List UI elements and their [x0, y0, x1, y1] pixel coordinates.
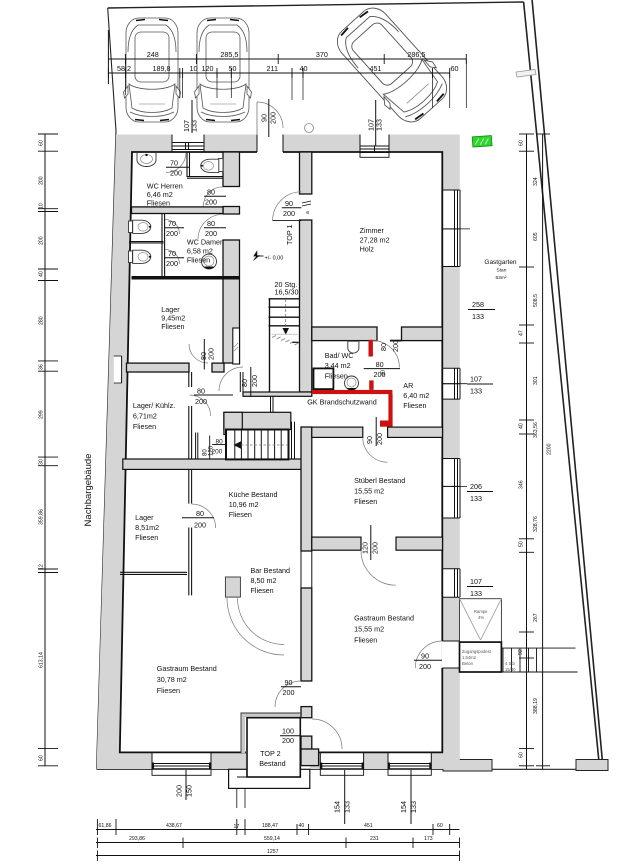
svg-text:248: 248 — [147, 50, 159, 59]
svg-text:80: 80 — [196, 509, 204, 518]
svg-text:Küche Bestand: Küche Bestand — [229, 490, 278, 499]
svg-text:328,76: 328,76 — [533, 516, 539, 532]
svg-text:80: 80 — [207, 219, 215, 228]
svg-text:Fliesen: Fliesen — [251, 586, 274, 595]
svg-text:WC Damen: WC Damen — [187, 238, 224, 247]
svg-text:Zimmer: Zimmer — [360, 226, 385, 235]
svg-text:60: 60 — [451, 64, 459, 73]
svg-text:200: 200 — [283, 688, 295, 697]
svg-text:60: 60 — [39, 140, 45, 146]
svg-text:189,8: 189,8 — [153, 64, 171, 73]
svg-text:267: 267 — [533, 613, 539, 622]
svg-text:90: 90 — [421, 652, 429, 661]
svg-text:388,19: 388,19 — [533, 698, 539, 714]
svg-text:17: 17 — [234, 824, 240, 830]
svg-text:30: 30 — [39, 459, 45, 465]
svg-text:324: 324 — [533, 177, 539, 186]
svg-text:2200: 2200 — [547, 443, 553, 455]
svg-text:15,55 m2: 15,55 m2 — [354, 487, 384, 496]
svg-text:Nachbargebäude: Nachbargebäude — [83, 454, 94, 527]
svg-text:200: 200 — [207, 348, 216, 360]
svg-text:TOP 1: TOP 1 — [285, 224, 294, 245]
svg-text:280: 280 — [39, 316, 45, 325]
svg-text:80: 80 — [381, 370, 387, 376]
svg-text:40: 40 — [299, 823, 305, 829]
svg-text:Holz: Holz — [360, 245, 375, 254]
svg-text:61,86: 61,86 — [99, 823, 112, 829]
svg-text:10: 10 — [39, 203, 45, 209]
svg-text:200: 200 — [166, 259, 178, 268]
svg-text:559,14: 559,14 — [264, 836, 280, 842]
svg-text:Gastgarten: Gastgarten — [484, 259, 517, 266]
svg-text:90: 90 — [365, 436, 374, 444]
svg-text:200: 200 — [205, 198, 217, 207]
svg-text:206: 206 — [470, 482, 482, 491]
svg-text:60: 60 — [519, 752, 525, 758]
svg-text:6,58 m2: 6,58 m2 — [187, 247, 213, 256]
svg-text:451: 451 — [370, 64, 382, 73]
svg-text:27,28 m2: 27,28 m2 — [360, 236, 390, 245]
svg-text:70: 70 — [168, 219, 176, 228]
svg-text:90: 90 — [260, 114, 269, 122]
svg-text:a: a — [305, 211, 311, 214]
svg-text:133: 133 — [190, 120, 199, 132]
svg-text:Fliesen: Fliesen — [157, 686, 180, 695]
svg-text:90: 90 — [285, 199, 293, 208]
svg-text:4%: 4% — [478, 615, 484, 620]
svg-text:Gastraum Bestand: Gastraum Bestand — [354, 614, 414, 623]
svg-text:12: 12 — [39, 564, 45, 570]
svg-text:Stan: Stan — [497, 268, 507, 274]
svg-text:Rampe: Rampe — [474, 609, 488, 614]
svg-text:47: 47 — [519, 330, 525, 336]
svg-text:200: 200 — [39, 236, 45, 245]
svg-text:Fliesen: Fliesen — [161, 322, 184, 331]
svg-text:451: 451 — [364, 823, 373, 829]
svg-text:40: 40 — [300, 64, 308, 73]
svg-text:370: 370 — [316, 50, 328, 59]
svg-text:299: 299 — [39, 410, 45, 419]
svg-text:30,78 m2: 30,78 m2 — [157, 675, 187, 684]
svg-text:200: 200 — [419, 662, 431, 671]
svg-text:133: 133 — [470, 494, 482, 503]
svg-text:16,5/30: 16,5/30 — [275, 288, 299, 297]
svg-text:Fliesen: Fliesen — [354, 636, 377, 645]
svg-text:60: 60 — [39, 755, 45, 761]
svg-text:80: 80 — [240, 379, 249, 387]
svg-text:211: 211 — [267, 64, 278, 73]
svg-text:286,5: 286,5 — [407, 50, 425, 59]
svg-text:438,67: 438,67 — [166, 823, 182, 829]
svg-text:80: 80 — [207, 188, 215, 197]
svg-text:107: 107 — [470, 577, 482, 586]
svg-text:50: 50 — [519, 541, 525, 547]
svg-text:154: 154 — [399, 801, 408, 813]
svg-text:92: 92 — [518, 649, 524, 655]
svg-text:6,40 m2: 6,40 m2 — [403, 391, 429, 400]
svg-text:258: 258 — [472, 300, 484, 309]
svg-text:285,5: 285,5 — [220, 50, 238, 59]
svg-text:200: 200 — [205, 229, 217, 238]
svg-text:359,86: 359,86 — [39, 509, 45, 525]
svg-text:Fliesen: Fliesen — [403, 401, 426, 410]
svg-text:TOP 2: TOP 2 — [260, 749, 281, 758]
svg-text:AR: AR — [403, 381, 413, 390]
svg-text:Fliesen: Fliesen — [133, 422, 156, 431]
svg-text:15,55 m2: 15,55 m2 — [354, 625, 384, 634]
svg-text:70: 70 — [168, 249, 176, 258]
svg-text:120: 120 — [202, 64, 214, 73]
svg-text:200: 200 — [283, 209, 295, 218]
svg-text:173: 173 — [424, 836, 433, 842]
svg-text:8,51m2: 8,51m2 — [135, 523, 159, 532]
svg-text:107: 107 — [470, 375, 482, 384]
svg-text:GK Brandschutzwand: GK Brandschutzwand — [307, 398, 377, 407]
svg-text:Gastraum Bestand: Gastraum Bestand — [157, 664, 217, 673]
svg-text:50: 50 — [229, 64, 237, 73]
svg-text:200: 200 — [39, 176, 45, 185]
svg-text:133: 133 — [343, 801, 352, 813]
svg-text:133: 133 — [470, 589, 482, 598]
svg-text:200: 200 — [194, 521, 206, 530]
svg-text:346: 346 — [519, 480, 525, 489]
svg-text:1257: 1257 — [267, 849, 279, 855]
svg-text:Stüberl Bestand: Stüberl Bestand — [354, 476, 405, 485]
svg-text:200: 200 — [282, 736, 294, 745]
svg-text:63m²: 63m² — [496, 275, 507, 281]
svg-text:58,2: 58,2 — [117, 64, 131, 73]
svg-text:188,47: 188,47 — [262, 823, 278, 829]
svg-text:154: 154 — [333, 801, 342, 813]
svg-text:508,5: 508,5 — [533, 294, 539, 307]
svg-text:363,56: 363,56 — [533, 422, 539, 438]
svg-text:200: 200 — [371, 542, 380, 554]
svg-text:80: 80 — [379, 343, 388, 351]
svg-text:100: 100 — [282, 727, 294, 736]
svg-text:200: 200 — [170, 169, 182, 178]
svg-text:3,44 m2: 3,44 m2 — [325, 361, 351, 370]
svg-text:40: 40 — [519, 423, 525, 429]
svg-text:40: 40 — [39, 271, 45, 277]
svg-text:Lager: Lager — [135, 513, 154, 522]
svg-text:231: 231 — [370, 836, 379, 842]
svg-text:Fliesen: Fliesen — [147, 199, 170, 208]
svg-text:200: 200 — [391, 340, 400, 352]
svg-text:90: 90 — [285, 678, 293, 687]
svg-text:4 Stb: 4 Stb — [505, 661, 515, 666]
svg-text:Bestand: Bestand — [259, 759, 285, 768]
svg-text:133: 133 — [409, 801, 418, 813]
svg-text:605: 605 — [533, 232, 539, 241]
svg-text:Fliesen: Fliesen — [135, 533, 158, 542]
svg-text:Fliesen: Fliesen — [229, 510, 252, 519]
svg-text:Fliesen: Fliesen — [354, 497, 377, 506]
svg-text:200: 200 — [250, 375, 259, 387]
svg-text:10: 10 — [190, 64, 198, 73]
svg-text:8,50 m2: 8,50 m2 — [251, 576, 277, 585]
svg-text:+/- 0,00: +/- 0,00 — [265, 256, 284, 262]
svg-text:10,96 m2: 10,96 m2 — [229, 500, 259, 509]
svg-text:1,54m2: 1,54m2 — [462, 655, 477, 660]
svg-text:133: 133 — [472, 312, 484, 321]
svg-text:200: 200 — [175, 785, 184, 797]
svg-text:301: 301 — [533, 376, 539, 385]
svg-text:80: 80 — [376, 360, 384, 369]
svg-text:133: 133 — [470, 387, 482, 396]
svg-text:200: 200 — [269, 112, 278, 124]
svg-text:Beton: Beton — [462, 661, 474, 666]
svg-text:120: 120 — [361, 542, 370, 554]
svg-text:293,86: 293,86 — [129, 836, 145, 842]
svg-text:80: 80 — [197, 387, 205, 396]
svg-text:36: 36 — [39, 364, 45, 370]
svg-text:613,14: 613,14 — [39, 652, 45, 668]
svg-text:Fliesen: Fliesen — [187, 256, 210, 265]
svg-text:200: 200 — [195, 397, 207, 406]
svg-text:60: 60 — [519, 140, 525, 146]
svg-text:Lager/ Kühlz.: Lager/ Kühlz. — [133, 401, 175, 410]
svg-text:Bad/ WC: Bad/ WC — [325, 351, 354, 360]
svg-text:200: 200 — [166, 229, 178, 238]
svg-text:60: 60 — [437, 823, 443, 829]
svg-text:70: 70 — [170, 159, 178, 168]
svg-text:Fliesen: Fliesen — [325, 372, 348, 381]
svg-text:Zugangspodest: Zugangspodest — [462, 649, 492, 654]
svg-text:Bar Bestand: Bar Bestand — [251, 566, 291, 575]
svg-text:15/30: 15/30 — [505, 667, 516, 672]
svg-text:6,71m2: 6,71m2 — [133, 412, 157, 421]
